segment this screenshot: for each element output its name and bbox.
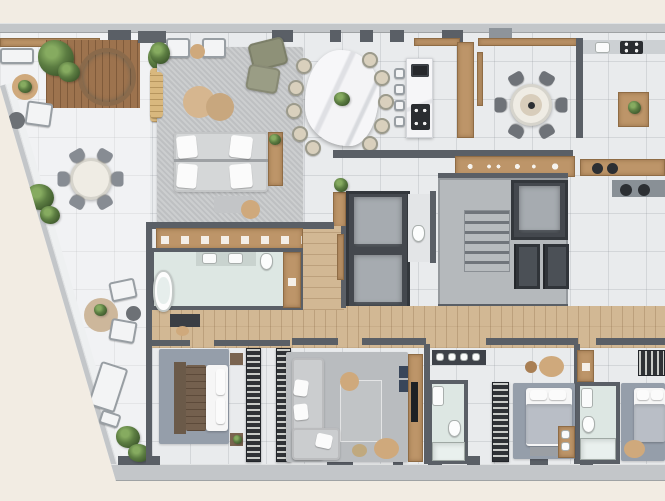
powder-wall bbox=[430, 191, 436, 263]
kitchen-top-counter bbox=[414, 38, 460, 46]
bed-pillow bbox=[651, 390, 663, 400]
top-pier bbox=[360, 30, 373, 42]
bed2-shower bbox=[432, 442, 465, 461]
armchair-olive bbox=[245, 63, 281, 94]
bathtub-basin bbox=[157, 277, 170, 304]
rooms-top-wall bbox=[292, 338, 338, 345]
top-pier bbox=[390, 30, 404, 42]
kitchen2-sink bbox=[595, 42, 610, 53]
terrace-pouf bbox=[126, 306, 141, 321]
nightstand-plant bbox=[233, 435, 242, 444]
console-bottle bbox=[561, 442, 570, 451]
slat-bench bbox=[150, 72, 163, 118]
bed-pillow bbox=[549, 390, 566, 400]
kitchenette-item bbox=[472, 353, 480, 361]
elevator-cab bbox=[354, 255, 402, 305]
kitchenette-item bbox=[448, 353, 456, 361]
bar-stool bbox=[394, 84, 405, 95]
kitchenette-item bbox=[436, 353, 444, 361]
sofa-pillow bbox=[315, 432, 334, 449]
terrace-chair bbox=[24, 100, 53, 127]
living-chair bbox=[202, 38, 226, 58]
bar-stool bbox=[394, 116, 405, 127]
table-centerpiece bbox=[334, 92, 350, 106]
plant-terrace bbox=[58, 62, 80, 82]
master-closet-band bbox=[156, 228, 303, 250]
plant-lobby bbox=[334, 178, 348, 192]
hot-tub bbox=[78, 48, 136, 106]
lobby-console bbox=[333, 192, 346, 228]
rooms-top-wall bbox=[596, 338, 665, 345]
breakfast-wall bbox=[576, 38, 583, 138]
island-appliance bbox=[411, 64, 429, 77]
outdoor-chair bbox=[112, 172, 124, 187]
nightstand bbox=[230, 353, 243, 365]
rooms-top-wall bbox=[214, 340, 290, 346]
elevator-cab bbox=[354, 197, 402, 247]
bed3-vanity bbox=[581, 388, 593, 408]
breakfast-chair bbox=[495, 98, 507, 113]
dining-chair bbox=[305, 140, 321, 156]
bed-pillow bbox=[216, 398, 225, 424]
plant-living bbox=[150, 42, 170, 64]
console-bottle bbox=[561, 430, 570, 439]
rooms-top-wall bbox=[148, 340, 190, 346]
dining-chair bbox=[296, 58, 312, 74]
bed3-duvet bbox=[634, 404, 665, 442]
coffee-table bbox=[206, 93, 234, 121]
rooms-top-wall bbox=[362, 338, 426, 345]
bottom-pier bbox=[467, 456, 480, 465]
outdoor-chair bbox=[58, 172, 70, 187]
tv-pouf bbox=[340, 372, 359, 391]
ac-unit bbox=[0, 378, 18, 390]
sofa-pillow bbox=[176, 163, 198, 189]
top-pier bbox=[330, 30, 341, 42]
master-duvet-dark bbox=[186, 365, 206, 431]
bed-pillow bbox=[637, 390, 649, 400]
bed-pillow bbox=[530, 390, 547, 400]
core-doors bbox=[543, 244, 569, 289]
console-bowl bbox=[592, 163, 603, 174]
kitchen2-stove bbox=[620, 41, 643, 54]
desk-chair bbox=[176, 326, 189, 336]
rooms-top-wall bbox=[486, 338, 578, 345]
plant-on-table bbox=[18, 80, 32, 93]
pantry-cabinet bbox=[457, 42, 474, 138]
side-table bbox=[190, 44, 205, 59]
tv-basket bbox=[352, 444, 367, 457]
sofa-spine bbox=[174, 159, 268, 162]
master-desk bbox=[170, 314, 200, 327]
tv-pouf bbox=[374, 438, 399, 459]
bed3-toilet bbox=[582, 416, 595, 433]
bed2-toilet bbox=[448, 420, 461, 437]
bed2-vanity bbox=[432, 386, 444, 406]
terrace-ottoman bbox=[8, 112, 25, 129]
outdoor-dining-table bbox=[70, 158, 112, 200]
console-bowl bbox=[607, 163, 618, 174]
bed3-shower bbox=[580, 438, 616, 460]
outdoor-sofa bbox=[0, 48, 34, 64]
bed3-closet-rail bbox=[638, 350, 665, 376]
dining-chair bbox=[374, 118, 390, 134]
bed3-pouf bbox=[624, 440, 645, 458]
sofa-pillow bbox=[229, 135, 254, 160]
staircase bbox=[464, 210, 510, 272]
sofa-pillow bbox=[229, 163, 253, 189]
bed-headboard bbox=[174, 362, 186, 434]
dining-chair bbox=[378, 94, 394, 110]
bed3-cabinet bbox=[577, 350, 594, 382]
island-plant-pot bbox=[628, 101, 641, 114]
vanity-sink bbox=[228, 253, 243, 264]
master-toilet bbox=[260, 253, 273, 270]
service-elevator-cab bbox=[519, 186, 560, 233]
bottom-wall bbox=[96, 464, 665, 481]
dining-chair bbox=[286, 103, 302, 119]
closet-rail bbox=[246, 348, 261, 462]
powder-sink bbox=[412, 225, 425, 242]
bed2-closet-rail bbox=[492, 382, 509, 462]
sofa-pillow bbox=[293, 403, 309, 420]
pouf bbox=[241, 200, 260, 219]
counter-sink bbox=[620, 184, 632, 196]
dining-chair bbox=[374, 70, 390, 86]
plant-console bbox=[269, 134, 281, 145]
bar-stool bbox=[394, 100, 405, 111]
terrace-chair bbox=[108, 318, 137, 344]
sofa-pillow bbox=[293, 379, 309, 397]
dining-chair bbox=[288, 80, 304, 96]
bar-stool bbox=[394, 68, 405, 79]
vanity-sink bbox=[202, 253, 217, 264]
counter-sink bbox=[638, 184, 650, 196]
bath-wardrobe bbox=[283, 252, 301, 308]
breakfast-column bbox=[477, 52, 483, 106]
sofa-pillow bbox=[176, 135, 198, 159]
hall-niche bbox=[337, 234, 344, 280]
bed2-side-table bbox=[525, 361, 537, 373]
plant-terrace bbox=[40, 206, 60, 224]
bed-pillow bbox=[216, 369, 225, 395]
kitchenette-item bbox=[460, 353, 468, 361]
island-cooktop bbox=[411, 104, 430, 130]
core-doors bbox=[514, 244, 540, 289]
television bbox=[411, 382, 418, 422]
dining-chair bbox=[362, 52, 378, 68]
floorplan-image bbox=[0, 0, 665, 501]
plant-on-rug bbox=[94, 304, 107, 316]
breakfast-header bbox=[478, 38, 578, 46]
dining-chair bbox=[292, 126, 308, 142]
breakfast-table-dot bbox=[528, 102, 535, 109]
planter-dark bbox=[138, 31, 166, 43]
breakfast-chair bbox=[556, 98, 568, 113]
floorplan-stage bbox=[0, 0, 665, 501]
bed2-armchair bbox=[539, 356, 564, 377]
